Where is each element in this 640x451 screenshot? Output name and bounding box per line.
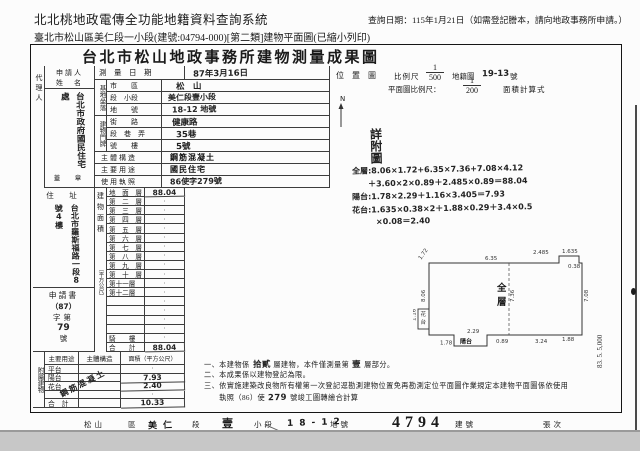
note-text: 執照（86）使 [204,394,265,402]
door-row-value: 5號 [162,140,330,152]
note-line: 二、本成果係以建物登記為限。 [204,370,310,380]
plan-scale-den: 200 [463,85,481,95]
application-number: 79 [33,322,94,333]
note-line: 一、本建物係拾貳層建物，本件僅測量第壹層部分。 [204,358,395,370]
area-calc-label: 面積計算式 [503,84,546,95]
plan-room-label: 層 [497,297,507,308]
plan-scale-num: 1 [463,76,481,85]
plan-dimension: 0.38 [568,264,581,270]
note-line: 執照（86）使279號竣工圖轉繪合計算 [204,393,358,403]
application-label: 申請書 [33,288,94,301]
applicant-name: 台北市政府國民住宅處 [52,92,88,171]
note-text: 二、本成果係以建物登記為限。 [204,371,310,379]
scanner-band [0,432,640,451]
plan-dimension: 7.08 [584,289,590,302]
plan-room-label: 全 [496,282,507,294]
floor-row-value: 88.04 [145,342,185,352]
site-lot: 18-12 地號 [172,104,217,116]
footer-segment: 區 [128,419,139,430]
plan-dimension: 6.35 [485,256,498,262]
site-city: 松 山 [176,79,202,92]
plan-flower-label: 花 [421,310,427,318]
print-mark: 83. 5. 5,000 [596,335,604,368]
site-row-value: 松 山 [162,80,330,92]
application-suffix: 號 [33,333,94,344]
door-row-label: 段 巷 弄 [107,128,162,140]
applicant-name-label-1: 申請人 [45,66,94,78]
plan-dimension: 3.24 [535,339,548,345]
usage-label: 主要用途 [95,164,162,176]
annex-row-structure [79,391,121,400]
cadastral-map-suffix: 號 [510,71,518,82]
site-row-value: 美仁段壹小段 [162,92,330,104]
survey-date-value: 87年3月16日 [193,66,248,79]
system-title: 北北桃地政電傳全功能地籍資料查詢系統 [34,9,268,28]
plan-dimension: 1.16 [413,308,418,321]
location-map-label: 位 置 圖 [336,70,376,81]
document-page: 北北桃地政電傳全功能地籍資料查詢系統 查詢日期：115年1月21日（如需登記謄本… [0,0,640,451]
door-row-label: 街 路 [107,116,162,128]
calc-line: ×0.08＝2.40 [352,215,430,228]
agent-label: 代理人 [33,66,45,188]
plan-dimension: 0.89 [496,339,509,345]
license-cell: 86使字279號 [162,176,330,188]
note-text: 三、依實施建築改良物所有權第一次登記逕勘測建物位置免再勘測定位平面圖作業規定本建… [204,382,568,390]
usage-value: 國民住宅 [170,164,206,175]
plan-dimension: 2.29 [467,329,480,335]
plan-dimension: 8.06 [421,289,427,302]
cadastral-map-number: 19-13 [482,69,509,80]
site-section: 美仁段壹小段 [168,91,216,103]
note-handwritten-value: 壹 [352,358,361,370]
structure-value: 鋼筋混凝土 [170,152,215,163]
note-text: 層部分。 [364,361,394,369]
note-text: 號竣工圖轉繪合計算 [290,394,358,402]
plan-dimension: 2.485 [533,250,549,256]
applicant-name-label-2: 姓 名 [45,78,94,89]
address-box: 住 址 台北市羅斯福路一段8號4樓 [33,188,95,288]
application-prefix: （87） [33,300,94,312]
door-number: 5號 [176,139,191,151]
floor-row-label: 第十二層 [107,288,145,297]
floor-plan: 1.726.352.4851.6358.067.367.083.241.880.… [413,247,610,358]
applicant-box: 申請人 姓 名 台北市政府國民住宅處 蓋 章 [45,66,95,188]
applicant-address: 台北市羅斯福路一段8號4樓 [44,204,84,287]
floor-row-value: · [145,334,185,343]
plan-scale-fraction: 1 200 [463,76,481,95]
site-row-label: 市 區 [107,80,162,92]
footer-segment: 張次 [543,419,564,430]
address-label: 住 址 [33,188,94,201]
note-line: 三、依實施建築改良物所有權第一次登記逕勘測建物位置免再勘測定位平面圖作業規定本建… [204,381,568,391]
plan-dimension: 1.72 [418,248,430,261]
floor-area-label: 建物面積 [96,192,106,262]
note-handwritten-value: 279 [268,392,287,402]
location-scale-label: 比例尺 [394,71,420,82]
survey-date-label: 測 量 日 期 [95,66,185,80]
floor-row-label [107,306,145,315]
site-row-label: 段 小段 [107,92,162,104]
plan-dimension: 1.78 [440,341,453,347]
plan-dimension: 7.36 [510,289,516,302]
door-row-label: 號 樓 [107,140,162,152]
scan-artifact-dot [631,288,636,295]
document-subtitle: 臺北市松山區美仁段一小段(建號:04794-000)[第二類]建物平面圖(已縮小… [34,29,370,44]
plan-dimension: 1.88 [562,337,575,343]
location-scale-fraction: 1 500 [426,63,444,82]
annex-header-structure: 主體構造 [79,352,121,365]
annex-row-use: 合 計 [45,399,79,408]
site-row-label: 地 號 [107,104,162,116]
floor-row-label [107,316,145,325]
location-scale-den: 500 [426,72,444,82]
application-box: 申請書 （87） 字第 79 號 [33,288,95,352]
plan-flower-label: 台 [421,318,427,326]
north-arrow: N [335,93,349,134]
license-value: 86使字279號 [170,175,222,187]
footer-segment: 松山 [84,419,105,430]
footer-segment: 段 [192,419,203,430]
survey-date-cell: 87年3月16日 [185,66,330,80]
page-edge-line [635,105,637,430]
usage-cell: 國民住宅 [162,164,330,176]
door-group-label: 建物門牌 [95,116,107,152]
note-handwritten-value: 拾貳 [252,358,270,370]
structure-label: 主體構造 [95,152,162,164]
note-text: 一、本建物係 [204,361,250,369]
north-label: N [340,95,345,103]
footer-segment: 建號 [455,419,476,430]
location-scale-num: 1 [426,63,444,72]
door-lane: 35巷 [176,127,197,139]
annex-group-label: 附屬建物 [33,352,45,408]
door-row-value: 35巷 [162,128,330,140]
plan-dimension: 1.635 [562,249,578,255]
note-text: 層建物，本件僅測量第 [273,361,349,369]
plan-scale-label: 平面圖比例尺： [388,84,441,95]
door-street: 健康路 [172,115,198,128]
floor-area-unit: （平方公尺） [97,266,105,346]
floor-row-label [107,297,145,306]
footer-segment: 壹 [222,415,233,431]
structure-cell: 鋼筋混凝土 [162,152,330,164]
footer-segment: 地號 [330,419,351,430]
site-group-label: 基地坐落 [95,80,107,116]
application-mid: 字第 [33,312,94,323]
annex-header-area: 面積（平方公尺） [121,352,185,365]
form-title: 台北市松山地政事務所建物測量成果圖 [82,46,380,67]
floor-area-label-col: 建物面積 （平方公尺） [95,188,107,352]
site-row-value: 18-12 地號 [162,104,330,116]
annex-row-structure [79,399,121,408]
query-date: 查詢日期：115年1月21日（如需登記謄本，請向地政事務所申請。） [368,13,627,26]
plan-balcony-label: 陽台 [460,338,472,346]
north-arrow-head [339,103,344,109]
seal-label: 蓋 章 [45,172,94,182]
floor-row-label: 合 計 [107,343,145,352]
door-row-value: 健康路 [162,116,330,128]
